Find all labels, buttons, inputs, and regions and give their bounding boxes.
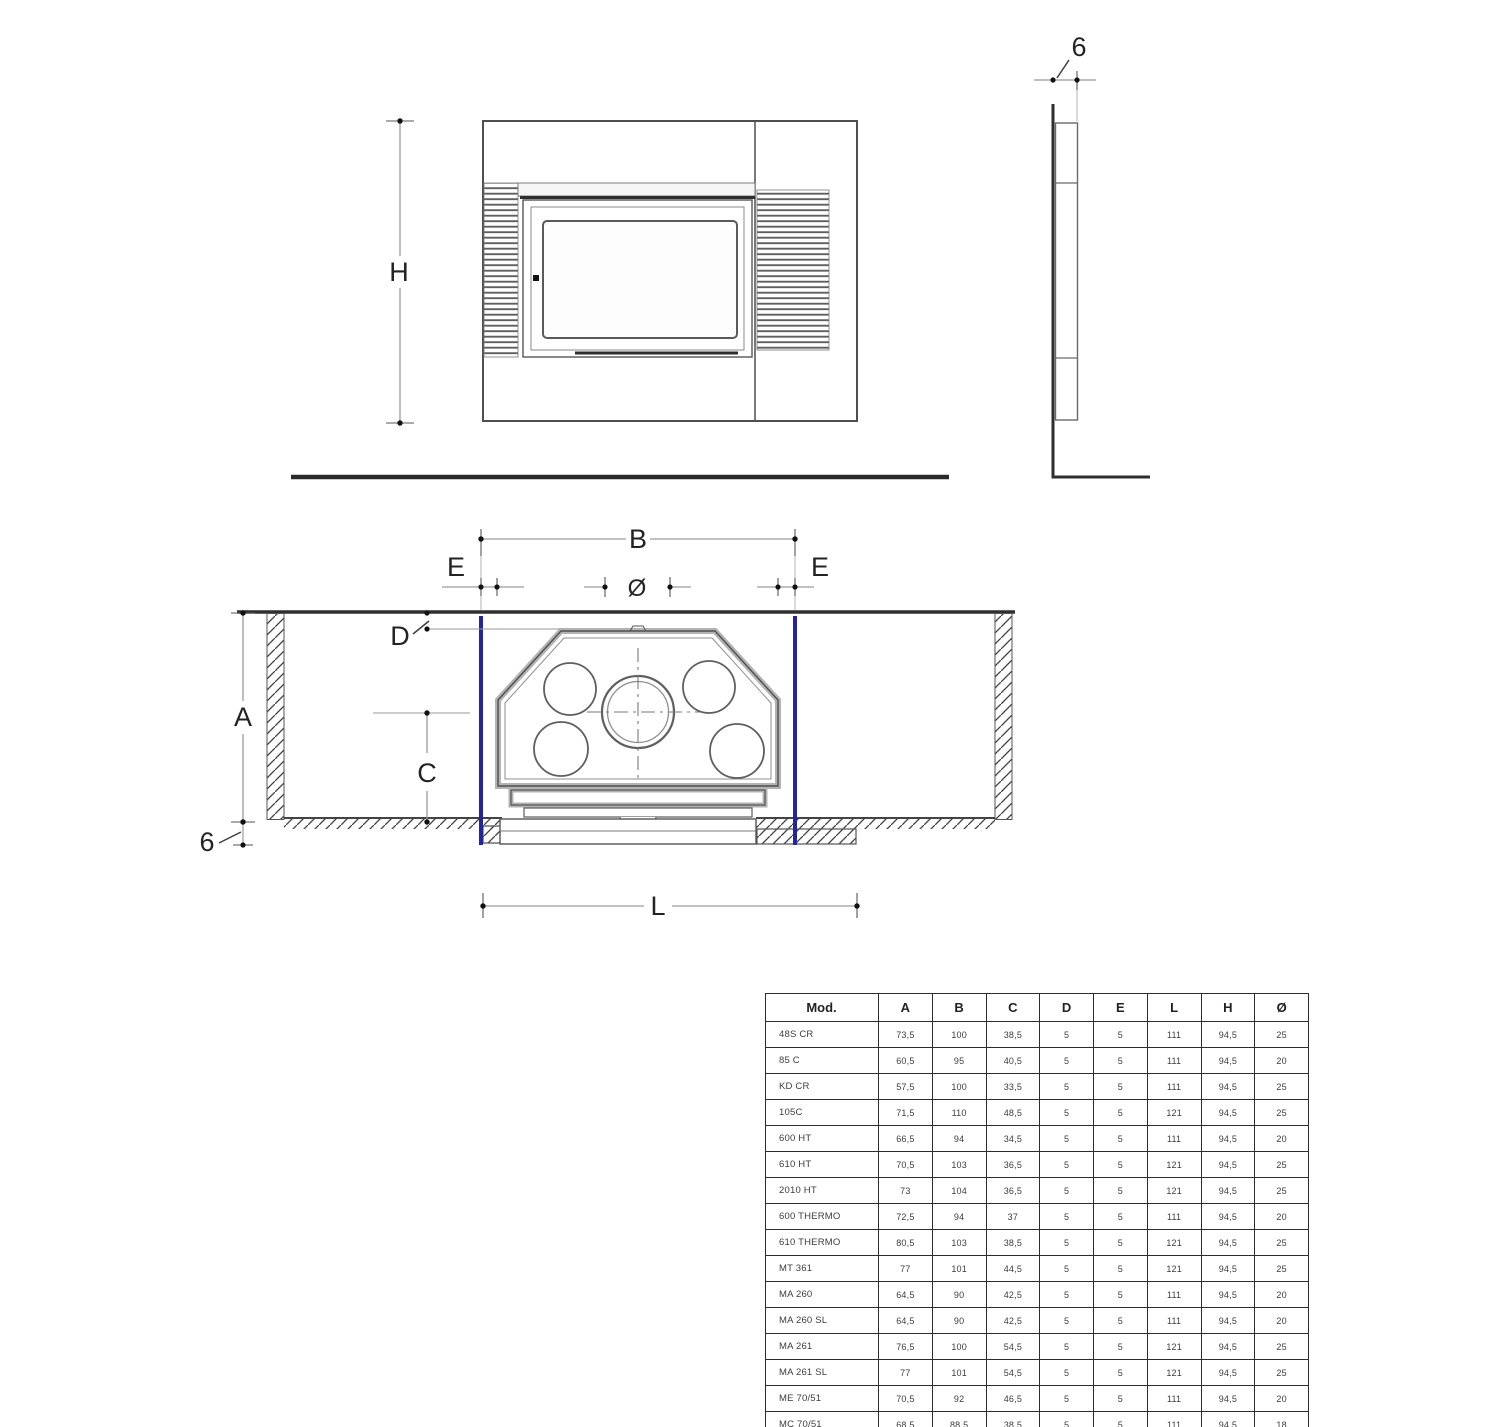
table-cell: 94,5 [1201,1048,1255,1074]
table-cell: 46,5 [986,1386,1040,1412]
table-cell: 5 [1040,1282,1094,1308]
table-cell: 38,5 [986,1412,1040,1427]
dim-L: L [480,891,859,921]
table-cell-model: 600 HT [766,1126,879,1152]
air-hole [544,663,596,715]
table-header-cell: L [1147,994,1201,1022]
table-cell: 111 [1147,1282,1201,1308]
table-cell: 5 [1094,1152,1148,1178]
table-cell-model: MA 260 [766,1282,879,1308]
table-cell: 5 [1040,1152,1094,1178]
table-cell: 5 [1094,1308,1148,1334]
dim-label-d: D [390,621,410,651]
table-cell: 44,5 [986,1256,1040,1282]
air-hole [534,722,588,776]
air-hole [710,724,764,778]
table-cell: 103 [932,1152,986,1178]
table-cell: 25 [1255,1334,1309,1360]
table-cell: 94 [932,1126,986,1152]
table-cell: 94,5 [1201,1360,1255,1386]
table-cell-model: 600 THERMO [766,1204,879,1230]
table-cell: 80,5 [879,1230,933,1256]
table-cell: 25 [1255,1152,1309,1178]
table-cell: 25 [1255,1178,1309,1204]
table-cell: 38,5 [986,1022,1040,1048]
table-cell: 94,5 [1201,1152,1255,1178]
table-cell: 5 [1094,1074,1148,1100]
table-cell: 25 [1255,1022,1309,1048]
dim-label-floor-thickness: 6 [199,827,214,857]
dim-label-panel-thickness: 6 [1071,32,1086,62]
dim-label-c: C [417,758,437,788]
table-cell: 90 [932,1308,986,1334]
table-cell: 36,5 [986,1152,1040,1178]
table-cell: 92 [932,1386,986,1412]
table-cell: 94,5 [1201,1256,1255,1282]
table-cell: 121 [1147,1178,1201,1204]
table-cell: 25 [1255,1230,1309,1256]
table-header-cell: D [1040,994,1094,1022]
table-cell: 5 [1094,1334,1148,1360]
table-header-cell: B [932,994,986,1022]
table-cell: 94,5 [1201,1074,1255,1100]
dim-A: A [231,610,255,824]
table-cell: 111 [1147,1204,1201,1230]
table-header-cell: E [1094,994,1148,1022]
table-cell: 111 [1147,1022,1201,1048]
table-cell: 94,5 [1201,1412,1255,1427]
table-cell: 5 [1040,1048,1094,1074]
table-cell: 20 [1255,1386,1309,1412]
table-cell: 100 [932,1334,986,1360]
right-grille [757,190,829,350]
table-cell: 5 [1094,1282,1148,1308]
table-row: 600 HT66,59434,55511194,520 [766,1126,1309,1152]
front-view-drawing: H [291,118,949,477]
firebox-door [520,198,755,358]
table-cell: 54,5 [986,1360,1040,1386]
table-cell-model: MT 361 [766,1256,879,1282]
table-cell: 64,5 [879,1308,933,1334]
table-cell: 5 [1040,1100,1094,1126]
insert-body [498,626,778,786]
table-cell: 70,5 [879,1152,933,1178]
table-cell: 73 [879,1178,933,1204]
table-row: 600 THERMO72,594375511194,520 [766,1204,1309,1230]
table-cell-model: 105C [766,1100,879,1126]
table-cell: 94,5 [1201,1230,1255,1256]
table-cell: 5 [1040,1126,1094,1152]
table-cell: 94,5 [1201,1100,1255,1126]
table-cell: 101 [932,1256,986,1282]
table-cell: 94,5 [1201,1386,1255,1412]
table-cell: 20 [1255,1048,1309,1074]
table-cell-model: 610 THERMO [766,1230,879,1256]
table-row: 610 THERMO80,510338,55512194,525 [766,1230,1309,1256]
dim-H: H [386,118,414,425]
table-cell: 94 [932,1204,986,1230]
table-header-cell: A [879,994,933,1022]
table-header-row: Mod.ABCDELHØ [766,994,1309,1022]
dim-label-e-left: E [447,552,465,582]
table-row: MC 70/5168,588,538,55511194,518 [766,1412,1309,1427]
table-row: MT 3617710144,55512194,525 [766,1256,1309,1282]
table-cell: 104 [932,1178,986,1204]
table-row: MA 261 SL7710154,55512194,525 [766,1360,1309,1386]
table-cell: 5 [1094,1256,1148,1282]
door-handle [533,275,539,281]
table-cell: 66,5 [879,1126,933,1152]
dim-D: D [390,610,560,651]
table-cell-model: MA 261 [766,1334,879,1360]
table-cell: 5 [1094,1022,1148,1048]
table-cell-model: MA 260 SL [766,1308,879,1334]
table-cell: 36,5 [986,1178,1040,1204]
table-row: KD CR57,510033,55511194,525 [766,1074,1309,1100]
table-cell: 94,5 [1201,1334,1255,1360]
table-cell: 94,5 [1201,1178,1255,1204]
table-cell: 94,5 [1201,1308,1255,1334]
table-body: 48S CR73,510038,55511194,52585 C60,59540… [766,1022,1309,1427]
left-grille [484,183,518,357]
table-row: 2010 HT7310436,55512194,525 [766,1178,1309,1204]
table-cell: 77 [879,1360,933,1386]
table-cell: 70,5 [879,1386,933,1412]
table-cell: 5 [1094,1360,1148,1386]
table-cell: 34,5 [986,1126,1040,1152]
table-header-cell: Mod. [766,994,879,1022]
table-cell-model: ME 70/51 [766,1386,879,1412]
table-cell: 100 [932,1022,986,1048]
table-cell: 103 [932,1230,986,1256]
table-cell-model: 2010 HT [766,1178,879,1204]
table-cell: 5 [1040,1256,1094,1282]
dim-diameter: Ø [584,575,691,602]
table-cell-model: 48S CR [766,1022,879,1048]
dim-label-l: L [650,891,665,921]
dim-C: C [373,710,470,824]
insert-base [500,790,765,844]
table-cell: 38,5 [986,1230,1040,1256]
table-cell: 5 [1040,1334,1094,1360]
table-cell: 5 [1040,1386,1094,1412]
table-row: MA 26064,59042,55511194,520 [766,1282,1309,1308]
table-cell-model: 610 HT [766,1152,879,1178]
table-cell: 121 [1147,1230,1201,1256]
table-cell: 54,5 [986,1334,1040,1360]
table-cell: 20 [1255,1308,1309,1334]
table-cell: 20 [1255,1126,1309,1152]
table-cell: 5 [1040,1022,1094,1048]
dim-6-floor: 6 [199,819,253,857]
dim-label-b: B [629,524,647,554]
table-cell: 5 [1040,1360,1094,1386]
table-cell-model: KD CR [766,1074,879,1100]
table-cell: 5 [1094,1178,1148,1204]
dim-label-h: H [389,257,409,287]
table-cell: 5 [1040,1074,1094,1100]
table-cell: 20 [1255,1282,1309,1308]
table-cell: 73,5 [879,1022,933,1048]
table-cell: 121 [1147,1334,1201,1360]
table-cell: 94,5 [1201,1126,1255,1152]
table-cell: 121 [1147,1152,1201,1178]
table-row: 85 C60,59540,55511194,520 [766,1048,1309,1074]
table-cell: 110 [932,1100,986,1126]
side-view-drawing: 6 [1034,32,1150,479]
table-cell: 5 [1040,1412,1094,1427]
table-cell: 71,5 [879,1100,933,1126]
right-wall-hatch [995,614,1012,820]
table-cell: 100 [932,1074,986,1100]
table-cell: 88,5 [932,1412,986,1427]
table-cell: 111 [1147,1126,1201,1152]
table-cell: 111 [1147,1048,1201,1074]
table-header-cell: Ø [1255,994,1309,1022]
table-header-cell: H [1201,994,1255,1022]
plan-view-drawing: B E E Ø [199,524,1015,921]
table-row: 105C71,511048,55512194,525 [766,1100,1309,1126]
table-row: 48S CR73,510038,55511194,525 [766,1022,1309,1048]
table-cell: 5 [1040,1230,1094,1256]
table-cell: 72,5 [879,1204,933,1230]
table-cell: 68,5 [879,1412,933,1427]
table-cell: 111 [1147,1074,1201,1100]
table-cell: 94,5 [1201,1204,1255,1230]
table-cell-model: MC 70/51 [766,1412,879,1427]
spec-table: Mod.ABCDELHØ 48S CR73,510038,55511194,52… [765,993,1309,1427]
table-cell: 5 [1094,1126,1148,1152]
table-cell: 90 [932,1282,986,1308]
table-cell: 42,5 [986,1308,1040,1334]
table-cell: 77 [879,1256,933,1282]
table-cell: 101 [932,1360,986,1386]
table-cell: 25 [1255,1100,1309,1126]
table-cell: 121 [1147,1100,1201,1126]
table-cell: 94,5 [1201,1282,1255,1308]
table-cell: 40,5 [986,1048,1040,1074]
table-cell: 95 [932,1048,986,1074]
table-cell: 121 [1147,1360,1201,1386]
table-cell: 94,5 [1201,1022,1255,1048]
table-cell: 5 [1094,1204,1148,1230]
table-cell: 42,5 [986,1282,1040,1308]
table-cell: 33,5 [986,1074,1040,1100]
table-cell: 111 [1147,1386,1201,1412]
table-cell: 121 [1147,1256,1201,1282]
floor-slab-right [757,829,856,844]
table-cell: 48,5 [986,1100,1040,1126]
table-cell: 37 [986,1204,1040,1230]
dim-E-right: E [757,552,829,596]
table-row: ME 70/5170,59246,55511194,520 [766,1386,1309,1412]
table-cell: 5 [1094,1100,1148,1126]
table-row: 610 HT70,510336,55512194,525 [766,1152,1309,1178]
table-row: MA 26176,510054,55512194,525 [766,1334,1309,1360]
table-cell: 25 [1255,1074,1309,1100]
table-cell: 5 [1094,1412,1148,1427]
page: H 6 [0,0,1500,1427]
table-cell: 5 [1040,1308,1094,1334]
table-header-cell: C [986,994,1040,1022]
dim-label-diameter: Ø [628,575,647,602]
table-cell: 18 [1255,1412,1309,1427]
table-cell: 25 [1255,1256,1309,1282]
table-cell: 111 [1147,1308,1201,1334]
table-cell: 5 [1040,1178,1094,1204]
table-cell: 76,5 [879,1334,933,1360]
table-cell: 20 [1255,1204,1309,1230]
table-cell: 64,5 [879,1282,933,1308]
table-cell: 111 [1147,1412,1201,1427]
dim-label-e-right: E [811,552,829,582]
table-cell: 5 [1094,1386,1148,1412]
table-cell: 5 [1094,1048,1148,1074]
table-cell: 60,5 [879,1048,933,1074]
left-wall-hatch [267,614,284,820]
air-hole [683,661,735,713]
table-cell: 57,5 [879,1074,933,1100]
dim-E-left: E [442,552,524,596]
table-cell-model: MA 261 SL [766,1360,879,1386]
table-cell-model: 85 C [766,1048,879,1074]
table-row: MA 260 SL64,59042,55511194,520 [766,1308,1309,1334]
table-cell: 5 [1040,1204,1094,1230]
dim-label-a: A [234,702,252,732]
dim-6-panel: 6 [1034,32,1096,121]
table-cell: 25 [1255,1360,1309,1386]
table-cell: 5 [1094,1230,1148,1256]
